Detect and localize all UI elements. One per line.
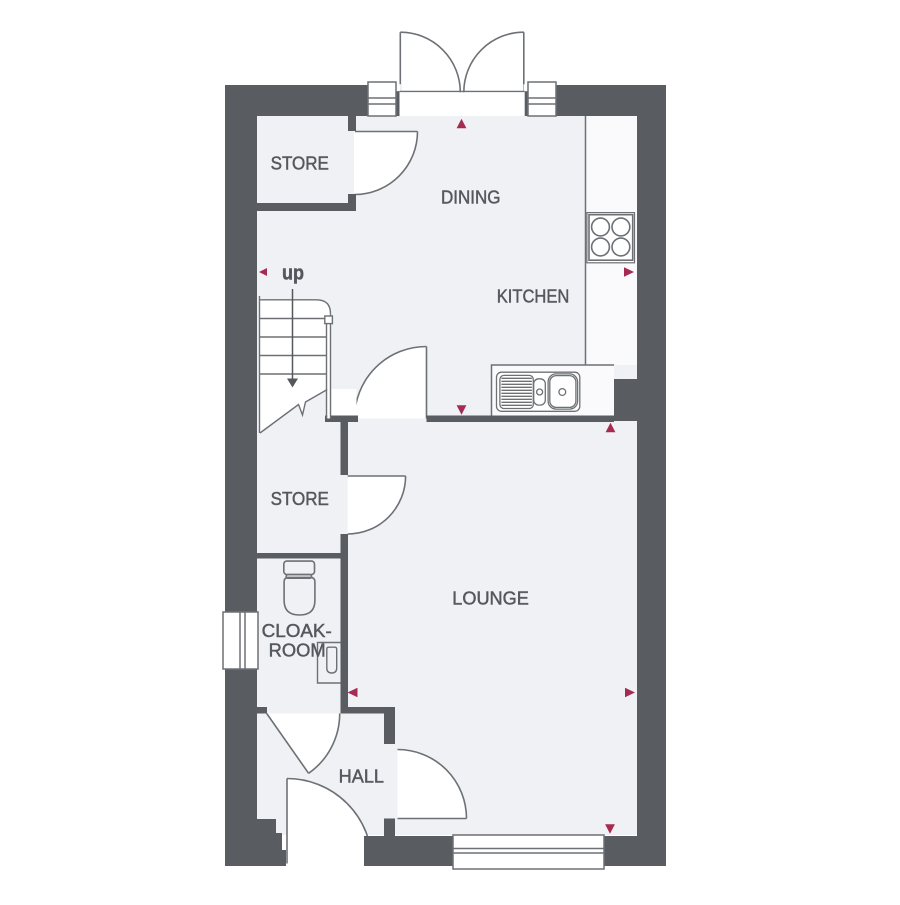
svg-text:DINING: DINING <box>441 188 501 208</box>
svg-text:up: up <box>282 263 304 285</box>
svg-text:STORE: STORE <box>271 489 329 509</box>
svg-text:CLOAK-: CLOAK- <box>262 621 332 641</box>
svg-text:KITCHEN: KITCHEN <box>497 287 570 307</box>
svg-text:HALL: HALL <box>339 766 384 786</box>
svg-text:STORE: STORE <box>271 153 329 173</box>
svg-text:LOUNGE: LOUNGE <box>452 589 529 609</box>
svg-text:ROOM: ROOM <box>269 640 326 660</box>
